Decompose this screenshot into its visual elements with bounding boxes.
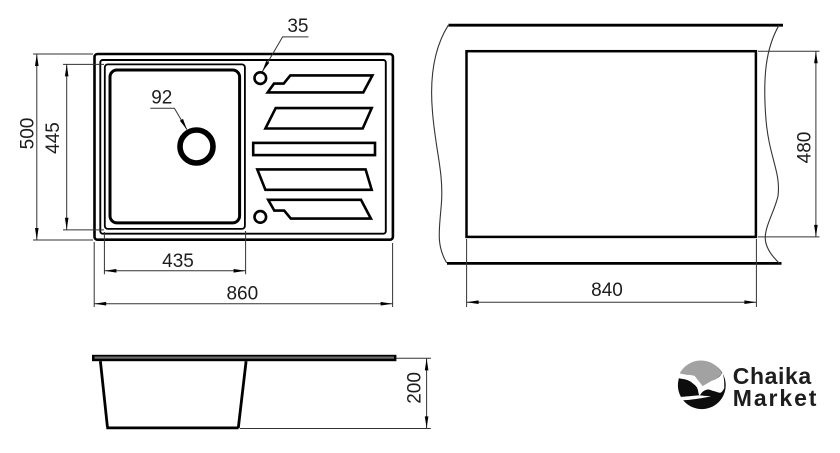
svg-text:200: 200 (404, 372, 425, 404)
svg-text:445: 445 (43, 122, 64, 154)
svg-text:500: 500 (17, 118, 38, 150)
svg-text:435: 435 (162, 251, 194, 272)
svg-text:Market: Market (733, 385, 819, 411)
svg-text:92: 92 (151, 88, 172, 109)
svg-text:35: 35 (287, 16, 308, 37)
svg-text:480: 480 (795, 132, 816, 164)
svg-text:840: 840 (591, 280, 623, 301)
svg-text:860: 860 (226, 283, 258, 304)
